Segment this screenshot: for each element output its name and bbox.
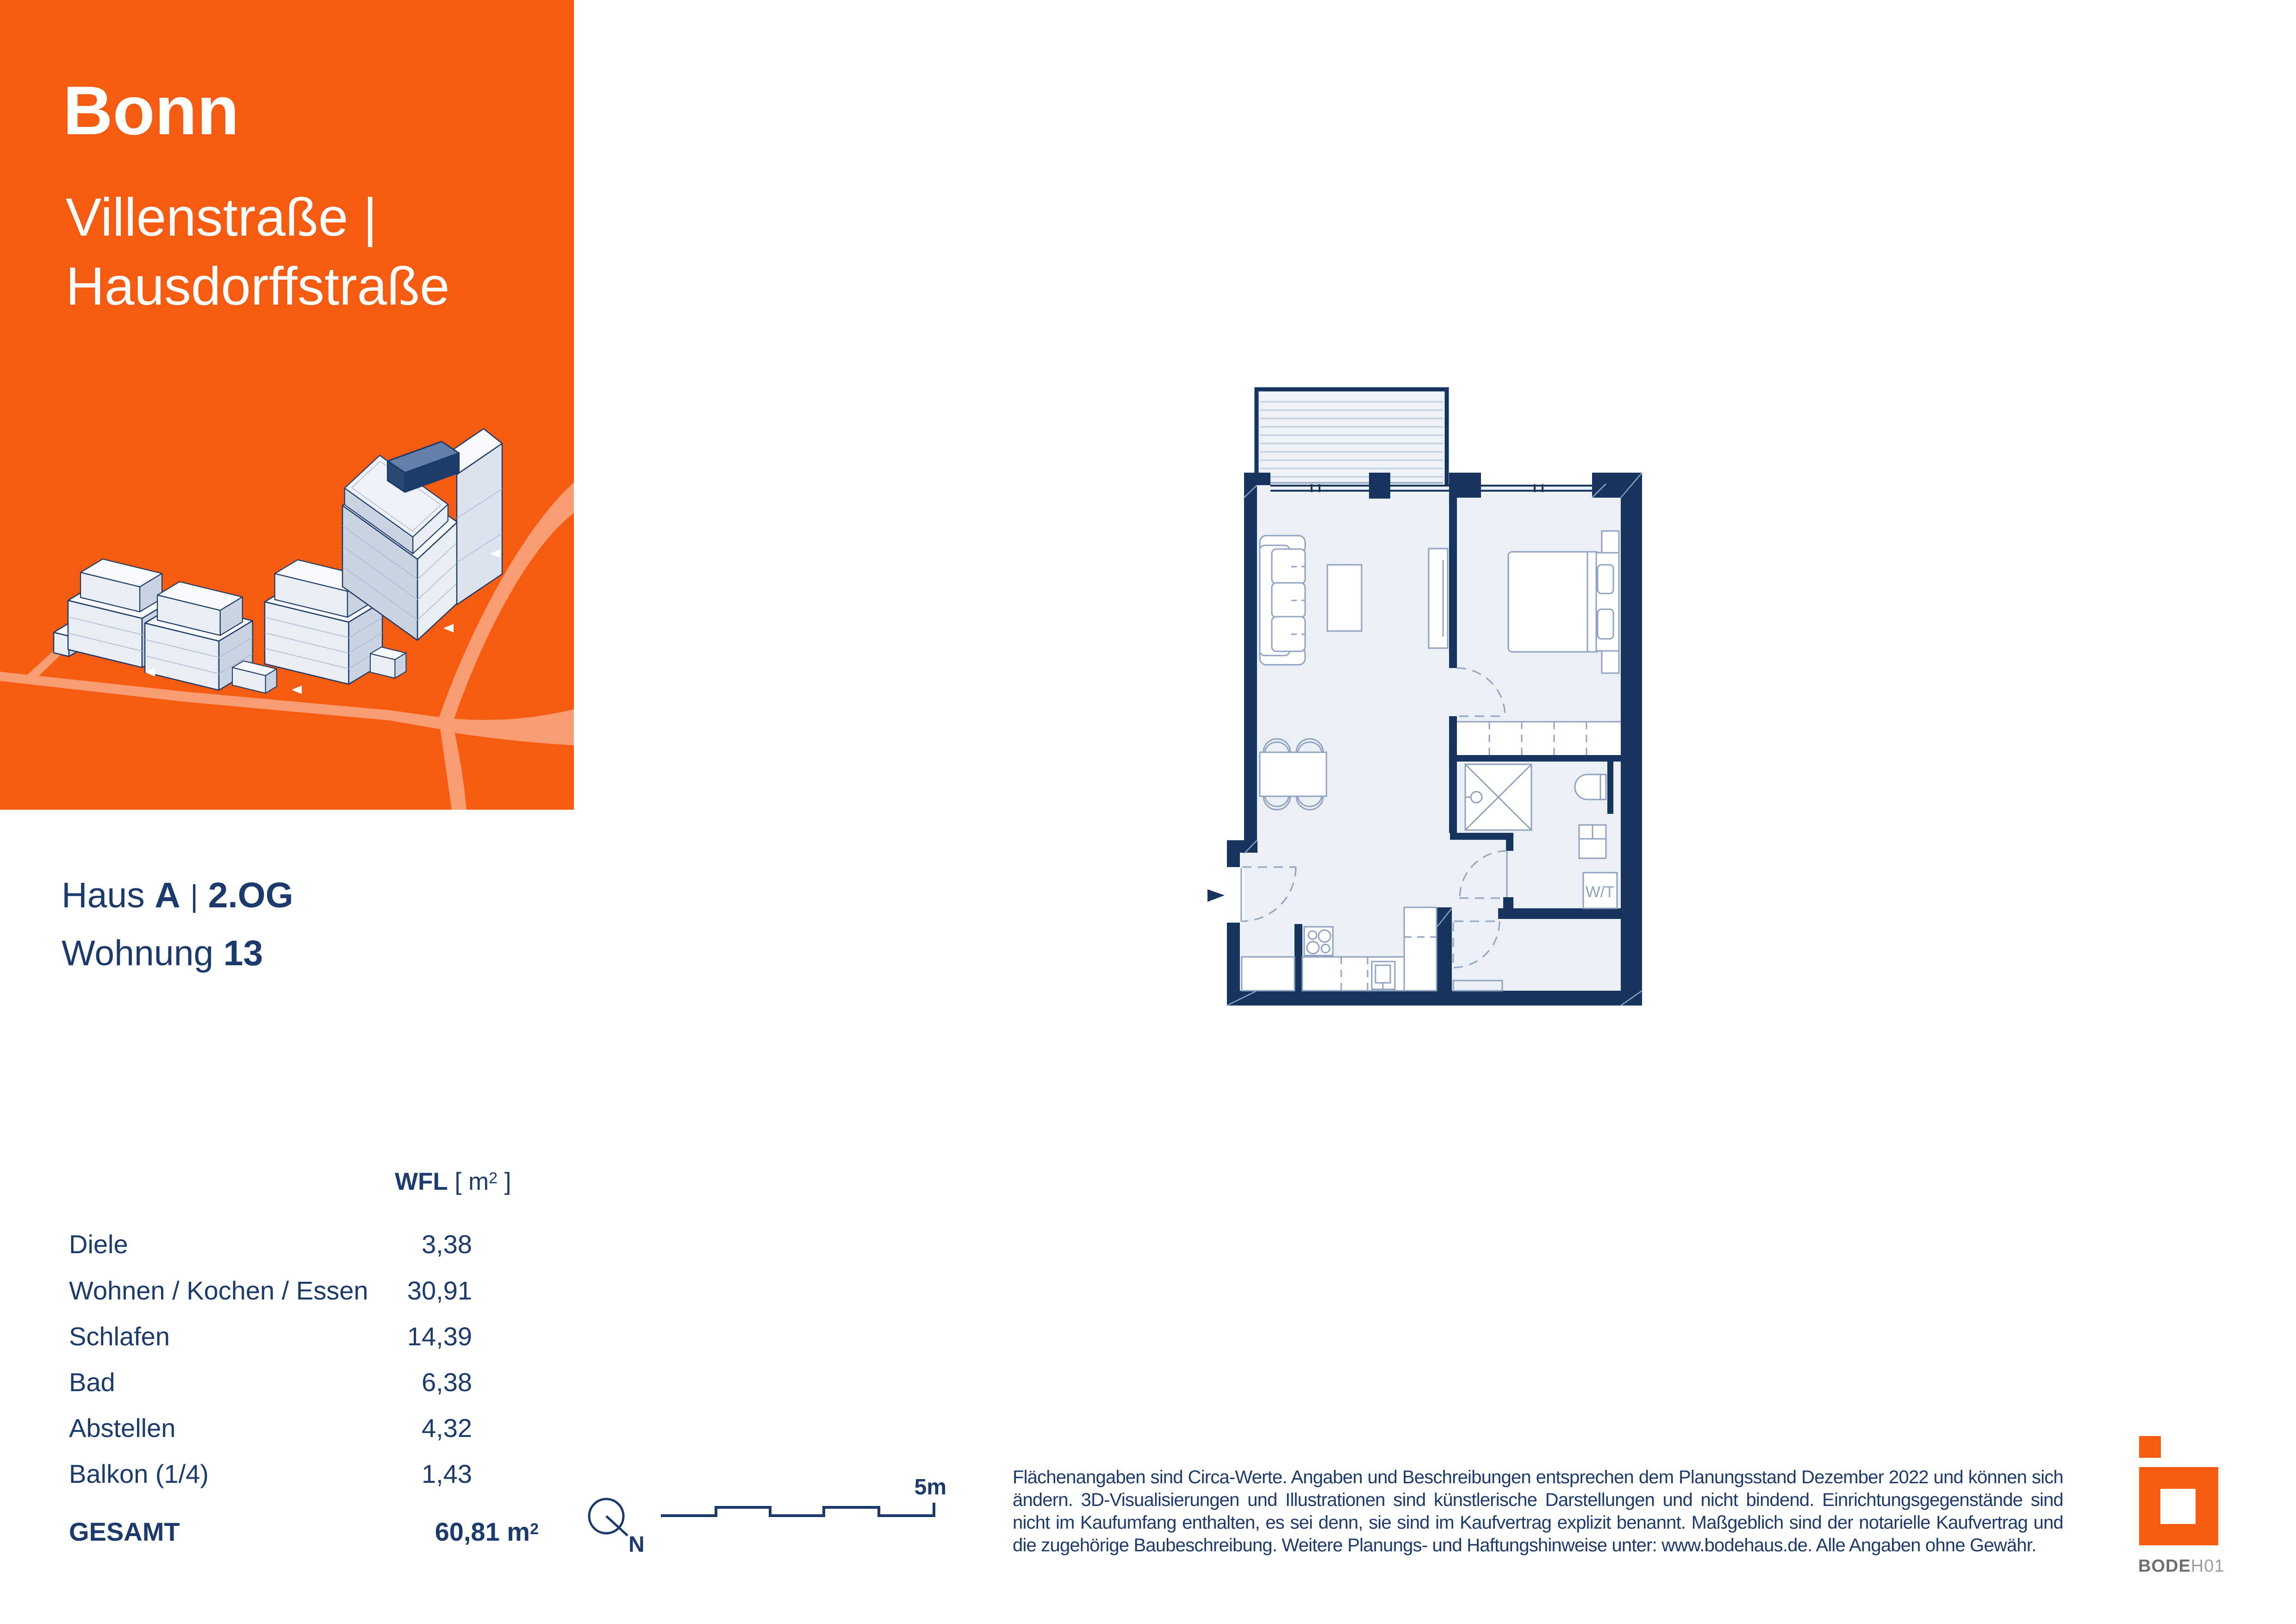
svg-text:N: N [628, 1532, 645, 1557]
svg-text:5m: 5m [915, 1475, 946, 1499]
svg-text:W/T: W/T [1586, 883, 1614, 901]
